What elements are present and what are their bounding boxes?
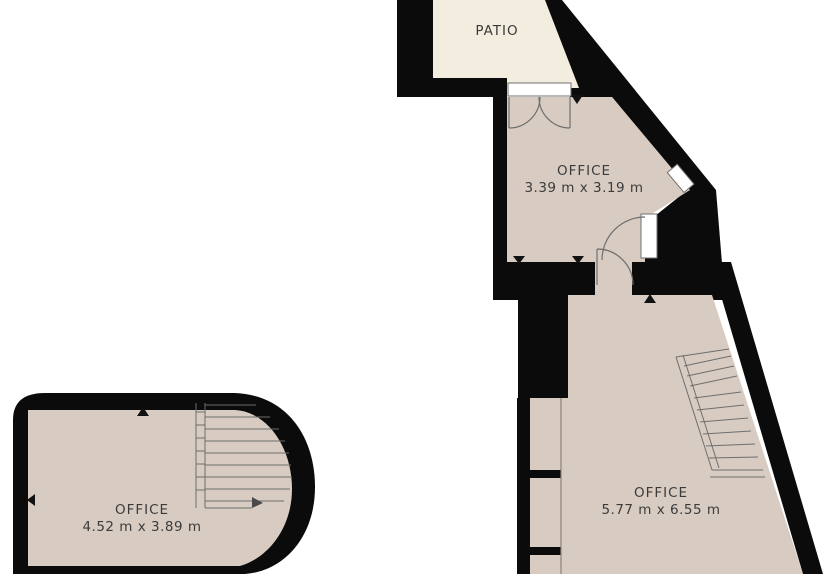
wall-office-right-west-block bbox=[518, 295, 568, 398]
office-right-alcove-1 bbox=[530, 398, 561, 470]
wall-patio-bottom bbox=[397, 78, 507, 97]
office-right-dimensions: 5.77 m x 6.55 m bbox=[601, 502, 720, 518]
office-right-label: OFFICE bbox=[634, 485, 688, 501]
office-top-dimensions: 3.39 m x 3.19 m bbox=[524, 180, 643, 196]
passage-floor bbox=[595, 250, 632, 295]
double-door-threshold bbox=[508, 83, 571, 96]
floor-plan-svg: PATIO OFFICE 3.39 m x 3.19 m OFFICE 5.77… bbox=[0, 0, 832, 574]
office-left-floor bbox=[28, 410, 292, 566]
office-top-label: OFFICE bbox=[557, 163, 611, 179]
door-opening-right-wall bbox=[641, 214, 657, 258]
office-left-label: OFFICE bbox=[115, 502, 169, 518]
wall-office-right-top bbox=[632, 262, 724, 295]
office-right-alcove-3 bbox=[530, 555, 561, 574]
floor-plan: PATIO OFFICE 3.39 m x 3.19 m OFFICE 5.77… bbox=[0, 0, 832, 574]
patio-label: PATIO bbox=[475, 23, 518, 39]
wall-alcove-stub-2 bbox=[523, 547, 562, 555]
office-left-dimensions: 4.52 m x 3.89 m bbox=[82, 519, 201, 535]
wall-alcove-stub-1 bbox=[523, 470, 562, 478]
office-right-alcove-2 bbox=[530, 478, 561, 547]
